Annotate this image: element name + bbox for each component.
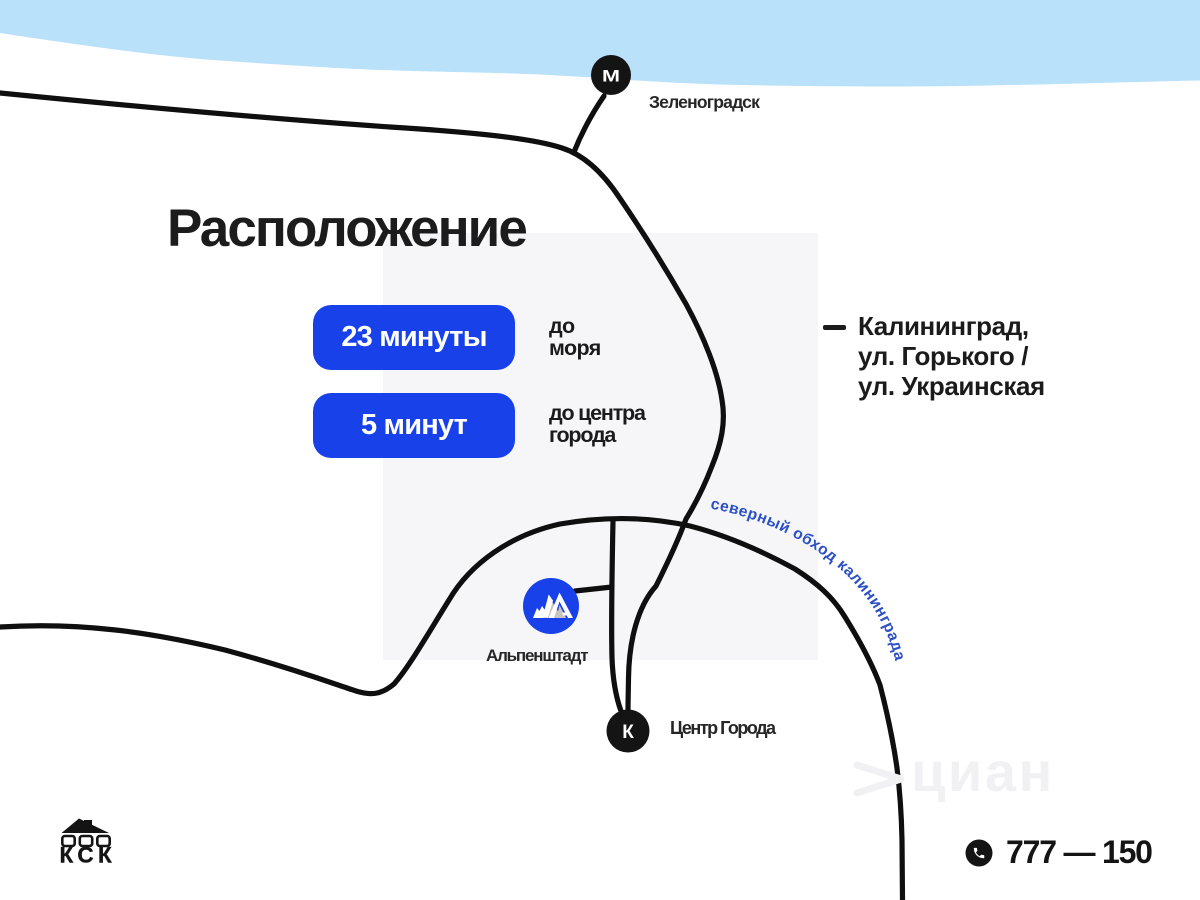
svg-text:циан: циан: [911, 740, 1055, 803]
svg-text:КСК: КСК: [60, 843, 117, 868]
svg-text:М: М: [602, 67, 620, 86]
svg-text:К: К: [622, 722, 634, 743]
